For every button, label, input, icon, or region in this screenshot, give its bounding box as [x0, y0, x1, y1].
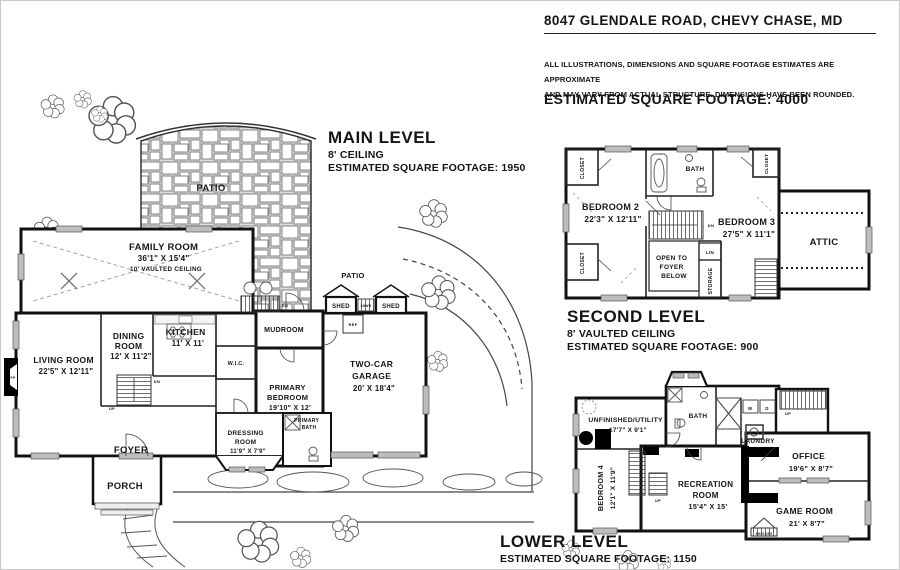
shed1-label: SHED [332, 304, 350, 310]
dining-room-label: DINING ROOM 12' X 11'2" [110, 326, 152, 361]
foyer-label: FOYER [114, 445, 148, 456]
primary-bedroom-label: PRIMARY BEDROOM 19'10" X 12' [267, 377, 313, 412]
main-level-sqft: ESTIMATED SQUARE FOOTAGE: 1950 [328, 162, 526, 174]
second-dn-label: DN [708, 223, 714, 228]
ref-label: REF [349, 322, 358, 327]
main-level-plan: FP [4, 123, 429, 515]
fireplace-label: FP [10, 376, 15, 380]
second-level-heading: SECOND LEVEL [567, 307, 759, 327]
address-title: 8047 GLENDALE ROAD, CHEVY CHASE, MD [544, 13, 876, 34]
main-level-heading: MAIN LEVEL [328, 128, 526, 148]
office-label: OFFICE 19'6" X 8'7" [789, 446, 833, 473]
attic-label: ATTIC [810, 237, 839, 248]
bath2-label: BATH [686, 166, 705, 173]
lin-label: LIN [706, 250, 714, 255]
bedroom3-label: BEDROOM 3 27'5" X 11'1" [718, 212, 780, 239]
shed2-label: SHED [382, 304, 400, 310]
main-level-ceiling: 8' CEILING [328, 149, 526, 161]
hedges [208, 469, 542, 492]
laundry-label: LAUNDRY [741, 438, 775, 445]
bedroom4-name-label: BEDROOM 4 [596, 465, 605, 511]
porch-label: PORCH [107, 481, 143, 492]
storage-label: STORAGE [708, 267, 714, 294]
closet-tl-label: CLOSET [580, 157, 586, 179]
foyer-stairs [117, 375, 151, 405]
bedroom4-dims-label: 12'1" X 11'9" [610, 467, 617, 509]
patio-lower-label: PATIO [341, 271, 364, 280]
wic-label: W.I.C. [228, 361, 245, 367]
bath-lower-label: BATH [689, 413, 708, 420]
second-level-sqft: ESTIMATED SQUARE FOOTAGE: 900 [567, 341, 759, 353]
closet-bl-label: CLOSET [580, 252, 586, 274]
shelves-label: SHELVES [756, 532, 773, 536]
lower-up-label: UP [655, 498, 661, 503]
stairs-dn-label: DN [154, 379, 160, 384]
lower-level-title: LOWER LEVEL ESTIMATED SQUARE FOOTAGE: 11… [500, 532, 697, 565]
lower-level-sqft: ESTIMATED SQUARE FOOTAGE: 1150 [500, 553, 697, 565]
second-level-plan: BEDROOM 2 22'3" X 12'11" BEDROOM 3 27'5"… [563, 146, 872, 301]
lower-stairs-up-label: UP [785, 411, 791, 416]
fireplace: FP [4, 358, 18, 396]
garage-label: TWO-CAR GARAGE 20' X 18'4" [350, 354, 398, 393]
family-room-label: FAMILY ROOM 36'1" X 15'4" 10' VAULTED CE… [129, 237, 203, 273]
shed-roofs [323, 285, 409, 297]
shwr-label: SHWR [361, 304, 372, 308]
second-level-ceiling: 8' VAULTED CEILING [567, 328, 759, 340]
closet-tr-label: CLOSET [764, 154, 769, 174]
lower-level-heading: LOWER LEVEL [500, 532, 697, 552]
stairs-up-label: UP [109, 406, 115, 411]
main-level-title: MAIN LEVEL 8' CEILING ESTIMATED SQUARE F… [328, 128, 526, 174]
lower-level-plan: UNFINISHED/UTILITY 17'7" X 9'1" BATH LAU… [573, 372, 871, 542]
mudroom-label: MUDROOM [264, 327, 304, 334]
disclaimer-line-1: ALL ILLUSTRATIONS, DIMENSIONS AND SQUARE… [544, 57, 889, 87]
second-level-title: SECOND LEVEL 8' VAULTED CEILING ESTIMATE… [567, 307, 759, 353]
floor-plan-page: FP [0, 0, 900, 570]
dryer-label: D [765, 406, 769, 411]
bedroom2-label: BEDROOM 2 22'3" X 12'11" [582, 197, 644, 224]
patio-stairs-dn-label: DN [282, 303, 288, 308]
total-square-footage: ESTIMATED SQUARE FOOTAGE: 4000 [544, 91, 808, 107]
washer-label: W [748, 406, 753, 411]
patio-upper-label: PATIO [196, 183, 225, 194]
